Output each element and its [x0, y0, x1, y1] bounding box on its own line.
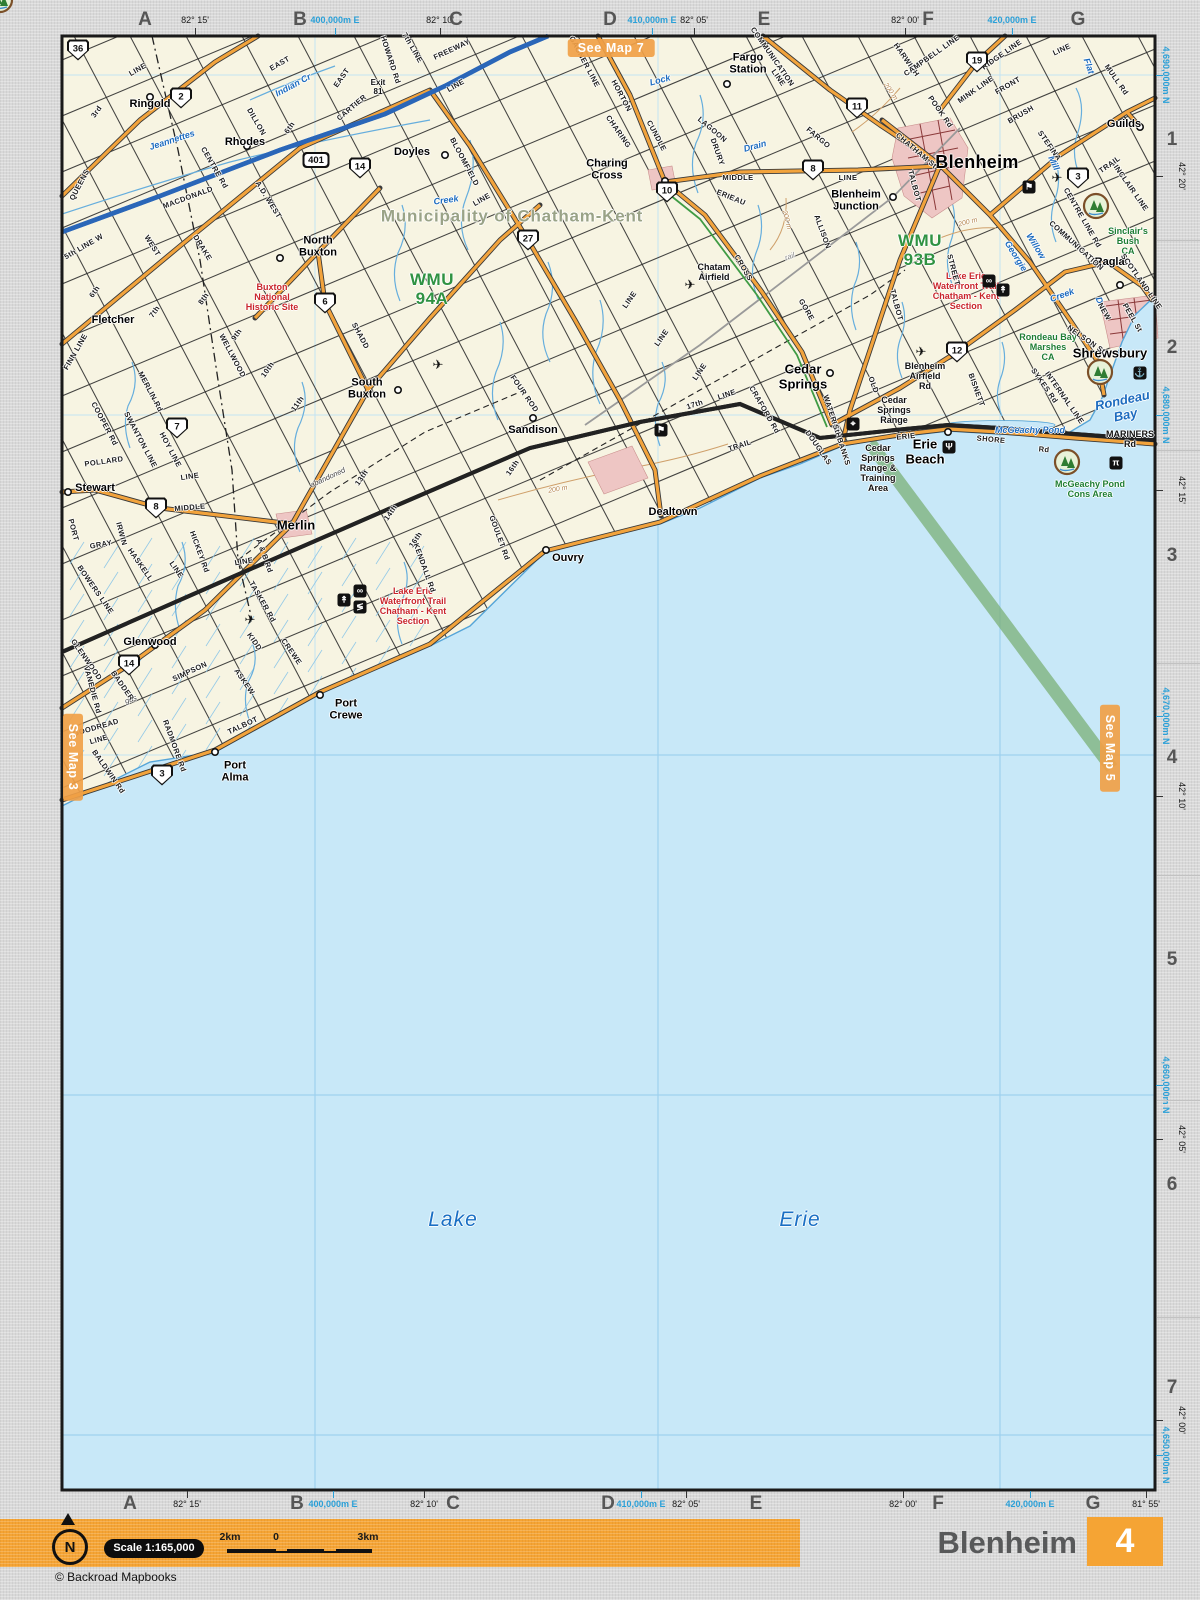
road-label: ALLISON [812, 214, 832, 250]
grid-column-letter: G [1086, 1493, 1101, 1515]
utm-coordinate: 400,000m E [308, 1499, 357, 1509]
shield-number: 12 [952, 345, 963, 356]
road-label: 16th [505, 459, 522, 478]
road-label: NEW [1096, 302, 1113, 322]
road-label: CARTIER [335, 93, 368, 123]
graticule-coordinate: 42° 15' [1177, 476, 1187, 504]
road-label: ASKEW [232, 667, 256, 696]
poi-label-green: McGeachy Pond Cons Area [1055, 479, 1125, 499]
page-title-text: Blenheim [937, 1525, 1077, 1560]
airfield-icon: ✈ [433, 357, 444, 373]
shield-number: 8 [153, 501, 158, 512]
road-label: Rd [1038, 445, 1050, 454]
road-label: ERIE [896, 432, 916, 442]
highway-shield: 401 [303, 152, 330, 168]
road-label: 7th LINE [400, 31, 424, 64]
water-label: Erie [779, 1208, 820, 1232]
see-map-tab[interactable]: See Map 5 [1100, 705, 1120, 792]
road-label: 5th LINE W [63, 232, 105, 261]
road-label: FOUR ROD [508, 374, 540, 414]
row-divider [1157, 1100, 1200, 1101]
road-label: 7th [148, 304, 162, 319]
water-label: Drain [743, 138, 768, 154]
road-label: DRURY [708, 137, 726, 167]
road-label: TALBOT [888, 288, 904, 321]
margin-tick [1156, 716, 1163, 717]
poi-label: Chatam Airfield [697, 262, 730, 282]
road-label: LINE [653, 328, 671, 348]
road-label: CUNDLE [644, 119, 667, 153]
scale-bar-segment [227, 1549, 276, 1553]
road-label: 3rd [90, 104, 104, 119]
water-label: Rondeau Bay [1094, 388, 1154, 428]
road-label: rail [784, 251, 796, 262]
highway-shield: 8 [145, 498, 167, 519]
shield-number: 27 [523, 233, 534, 244]
road-label: ERIEAU [715, 188, 747, 207]
poi-label: Cedar Springs Range & Training Area [860, 443, 897, 493]
road-label: 6th [88, 284, 102, 299]
road-label: WELLWOOD [217, 333, 247, 380]
contour-label: 200 m [958, 217, 979, 230]
highway-shield: 36 [67, 40, 89, 61]
hiking-icon: ↟ [338, 594, 351, 607]
road-label: LINE [180, 472, 200, 483]
water-label: Georgie [1003, 239, 1030, 273]
road-label: EAST [332, 67, 351, 90]
road-label: IRWIN [114, 521, 128, 546]
margin-tick [1156, 1139, 1163, 1140]
scale-zero-label: 0 [273, 1531, 279, 1543]
road-label: BISNETT [966, 372, 986, 408]
shield-number: 2 [178, 91, 183, 102]
road-label: 8th [197, 291, 211, 306]
grid-column-letter: G [1071, 9, 1086, 31]
golf-icon: ⚑ [655, 424, 668, 437]
road-label: 16th [408, 531, 425, 550]
road-label: TRAIL [1098, 155, 1123, 176]
highway-shield: 11 [846, 98, 868, 119]
road-label: POLLARD [84, 455, 124, 469]
road-label: FRONT [994, 75, 1022, 96]
margin-tick [440, 28, 441, 35]
copyright-text: © Backroad Mapbooks [55, 1570, 177, 1584]
road-label: A & B Rd [254, 538, 274, 574]
row-divider [1157, 663, 1200, 664]
highway-shield: 14 [118, 655, 140, 676]
grid-row-number: 1 [1167, 129, 1178, 151]
shield-number: 8 [810, 163, 815, 174]
road-label: GOULET Rd [487, 515, 511, 562]
road-label: INTERNAL LINE [1043, 370, 1086, 426]
town-label: Fargo Station [729, 52, 766, 77]
road-label: LINE [167, 560, 185, 580]
road-label: gas [124, 694, 138, 706]
highway-shield: 6 [314, 293, 336, 314]
town-label: Ringold [130, 98, 171, 110]
municipality-label: Municipality of Chatham-Kent [381, 206, 643, 225]
grid-row-number: 2 [1167, 337, 1178, 359]
graticule-coordinate: 42° 10' [1177, 782, 1187, 810]
road-label: MACDONALD [162, 185, 214, 211]
town-label: Fletcher [92, 314, 135, 326]
road-label: STEFINA [1036, 129, 1063, 162]
graticule-coordinate: 82° 05' [680, 15, 708, 25]
town-label: Port Alma [222, 760, 249, 785]
margin-tick [1030, 1491, 1031, 1498]
road-label: WATER St [821, 394, 841, 434]
highway-shield: 27 [517, 230, 539, 251]
grid-column-letter: B [293, 9, 307, 31]
grid-column-letter: D [603, 9, 617, 31]
road-label: 14th [383, 504, 400, 523]
wmu-label: WMU 94A [410, 270, 454, 308]
grid-row-number: 5 [1167, 949, 1178, 971]
highway-shield: 2 [170, 88, 192, 109]
grid-row-number: 6 [1167, 1174, 1178, 1196]
scale-left-label: 2km [219, 1531, 240, 1543]
water-label: Dr [1094, 296, 1107, 309]
road-label: LINE [89, 733, 109, 746]
airfield-icon: ✈ [685, 277, 696, 293]
road-label: MINK LINE [956, 75, 995, 106]
road-label: CENTRE LINE Rd [1061, 187, 1102, 250]
road-label: BOWERS LINE [75, 564, 115, 616]
town-label: Erie Beach [905, 437, 944, 466]
road-label: SHORE [976, 435, 1005, 446]
highway-shield: 14 [349, 158, 371, 179]
water-label: Lake [428, 1208, 478, 1232]
shield-number: 36 [73, 43, 84, 54]
road-label: TALBOT [906, 169, 922, 202]
road-label: LAGOON [696, 115, 728, 144]
exit-label: Exit 81 [371, 79, 386, 97]
restaurant-icon: Ψ [943, 441, 956, 454]
ski-icon: ≶ [354, 601, 367, 614]
road-label: LINE [691, 362, 709, 382]
grid-column-letter: F [922, 9, 934, 31]
row-divider [1157, 875, 1200, 876]
road-label: EAST [269, 55, 292, 73]
road-label: POOK Rd [926, 94, 954, 129]
margin-tick [1146, 1491, 1147, 1498]
utm-coordinate: 400,000m E [310, 15, 359, 25]
airfield-icon: ✈ [1052, 170, 1063, 186]
highway-shield: 7 [166, 418, 188, 439]
road-label: CENTRE Rd [199, 146, 230, 190]
road-label: NELSON St [1065, 324, 1106, 356]
shield-number: 19 [972, 55, 983, 66]
town-label: South Buxton [348, 377, 386, 402]
airfield-icon: ✈ [245, 612, 256, 628]
margin-tick [641, 1491, 642, 1498]
road-label: FARGO [804, 126, 831, 151]
margin-tick [1156, 415, 1163, 416]
road-label: TALBOT [227, 715, 260, 736]
grid-column-letter: B [290, 1493, 304, 1515]
graticule-coordinate: 42° 05' [1177, 1125, 1187, 1153]
contour-label: 200 m [881, 82, 899, 102]
grid-row-number: 7 [1167, 1377, 1178, 1399]
margin-tick [694, 28, 695, 35]
grid-column-letter: A [138, 9, 152, 31]
graticule-coordinate: 42° 20' [1177, 162, 1187, 190]
margin-tick [333, 1491, 334, 1498]
utm-coordinate: 410,000m E [616, 1499, 665, 1509]
page-number-box: 4 [1087, 1517, 1163, 1566]
road-label: PORT [66, 518, 80, 542]
margin-tick [1156, 490, 1163, 491]
highway-shield: 8 [802, 160, 824, 181]
wmu-label: WMU 93B [898, 231, 942, 269]
road-label: KIDD [245, 631, 263, 652]
water-label: Creek [433, 193, 459, 206]
water-label: Willow [1024, 231, 1048, 260]
road-label: CHATHAM St [894, 131, 938, 170]
shield-number: 7 [174, 421, 179, 432]
town-label: Port Crewe [329, 698, 362, 723]
poi-label-green: Sinclair's Bush CA [1108, 226, 1148, 256]
graticule-coordinate: 82° 00' [889, 1499, 917, 1509]
road-label: LINE [717, 388, 737, 402]
contour-label: 200 m [780, 210, 793, 231]
road-label: CAMPBELL LINE [903, 34, 962, 79]
road-label: LINE [1052, 42, 1072, 58]
town-label: Ouvry [552, 552, 584, 564]
road-label: GORE [796, 298, 815, 323]
row-divider [1157, 1317, 1200, 1318]
poi-label-green: Rondeau Bay Marshes CA [1019, 332, 1077, 362]
road-label: SYKES Rd [1029, 367, 1059, 405]
town-label: Stewart [75, 482, 115, 494]
highway-shield: 10 [656, 182, 678, 203]
town-label: Sandison [508, 424, 558, 436]
map-page: RingoldRhodesDoylesCharing CrossFargo St… [0, 0, 1200, 1600]
graticule-coordinate: 82° 00' [891, 15, 919, 25]
north-arrow-icon [61, 1513, 75, 1525]
picnic-icon: π [1110, 457, 1123, 470]
road-label: BLOOMFIELD [448, 136, 481, 187]
road-label: SINCLAIR LINE [1108, 159, 1149, 213]
utm-coordinate: 420,000m E [1005, 1499, 1054, 1509]
road-label: OLD [866, 376, 880, 395]
margin-tick [1156, 1085, 1163, 1086]
town-label: Glenwood [123, 636, 176, 648]
town-label: Merlin [277, 519, 315, 534]
road-label: FINN LINE [62, 332, 89, 371]
road-label: SCOTLAND LINE [1119, 253, 1164, 312]
town-label: Charing Cross [586, 158, 628, 183]
road-label: VANEDIE Rd [82, 665, 103, 714]
road-label: MULL Rd [1102, 63, 1129, 97]
road-label: COOPER Rd [89, 401, 119, 447]
graticule-coordinate: 82° 10' [410, 1499, 438, 1509]
margin-tick [903, 1491, 904, 1498]
see-map-tab[interactable]: See Map 7 [568, 39, 655, 57]
road-label: LINE [769, 68, 787, 88]
road-label: LINE [472, 192, 492, 209]
shield-number: 14 [124, 658, 135, 669]
graticule-coordinate: 42° 00' [1177, 1406, 1187, 1434]
town-label: Dealtown [649, 506, 698, 518]
water-label: Lock [649, 72, 672, 87]
highway-shield: 3 [1067, 168, 1089, 189]
poi-label: Blenheim Airfield Rd [905, 361, 946, 391]
road-label: LINE [621, 290, 639, 310]
road-label: BALDWIN Rd [90, 749, 126, 796]
grid-column-letter: E [750, 1493, 763, 1515]
road-label: HOWARD Rd [378, 35, 401, 85]
copyright: © Backroad Mapbooks [55, 1570, 177, 1584]
town-label: Rhodes [225, 136, 265, 148]
grid-column-letter: C [446, 1493, 460, 1515]
contour-label: 200 m [548, 484, 569, 495]
grid-column-letter: E [758, 9, 771, 31]
scale-text: Scale 1:165,000 [113, 1542, 194, 1554]
see-map-tab[interactable]: See Map 3 [63, 714, 83, 801]
town-label: Blenheim Junction [831, 189, 881, 214]
road-label: 9th [230, 327, 244, 342]
grid-column-letter: F [932, 1493, 944, 1515]
scale-bar-segment [336, 1549, 372, 1553]
grid-row-number: 3 [1167, 545, 1178, 567]
road-label: MIDDLE [722, 174, 753, 182]
page-number: 4 [1116, 1522, 1135, 1561]
road-label: BADDER [109, 669, 136, 702]
road-label: WEST [142, 234, 161, 258]
north-letter: N [65, 1539, 76, 1556]
margin-tick [686, 1491, 687, 1498]
boat-launch-icon: ⚓ [1134, 367, 1147, 380]
road-label: SIMPSON [171, 660, 208, 683]
road-label: CHARING [604, 114, 633, 150]
road-label: TRAIL [727, 438, 753, 453]
margin-tick [1156, 75, 1163, 76]
grid-column-letter: A [123, 1493, 137, 1515]
grid-row-number: 4 [1167, 747, 1178, 769]
scale-right-label: 3km [357, 1531, 378, 1543]
road-label: LINE [446, 78, 466, 95]
margin-tick [1156, 796, 1163, 797]
shield-number: 6 [322, 296, 327, 307]
road-label: MERLIN Rd [136, 370, 164, 413]
road-label: LINE [234, 556, 254, 568]
road-label: CREWE [279, 637, 303, 666]
poi-label-red: Lake Erie Waterfront Trail Chatham - Ken… [380, 586, 447, 626]
road-label: STREET [945, 253, 961, 286]
utm-coordinate: 410,000m E [627, 15, 676, 25]
road-label: BRUSH [1006, 104, 1035, 126]
road-label: COMMUNICATION [1047, 219, 1105, 272]
shield-number: 401 [308, 155, 324, 166]
graticule-coordinate: 82° 05' [672, 1499, 700, 1509]
highway-shield: 12 [946, 342, 968, 363]
water-label: Jeannettes [148, 128, 196, 152]
road-label: SHADD [350, 321, 371, 350]
grid-column-letter: D [601, 1493, 615, 1515]
highway-shield: 3 [151, 765, 173, 786]
margin-tick [187, 1491, 188, 1498]
margin-tick [335, 28, 336, 35]
road-label: 6th [283, 120, 297, 135]
road-label: HARWICH [891, 42, 920, 79]
water-label: Creek [1049, 286, 1076, 304]
airfield-icon: ✈ [916, 344, 927, 360]
road-label: HICKEY Rd [188, 530, 211, 574]
road-label: GRAY [89, 539, 113, 551]
graticule-coordinate: 81° 55' [1132, 1499, 1160, 1509]
road-label: A.D. WEST [253, 180, 283, 220]
poi-label: MARINERS Rd [1106, 429, 1154, 449]
margin-tick [424, 1491, 425, 1498]
margin-tick [1156, 176, 1163, 177]
grid-column-letter: C [449, 9, 463, 31]
cycling-icon: ∞ [983, 275, 996, 288]
poi-label-red: Buxton National Historic Site [246, 282, 299, 312]
shield-number: 14 [355, 161, 366, 172]
road-label: DILLON [245, 107, 267, 137]
shield-number: 10 [662, 185, 673, 196]
north-indicator: N [52, 1529, 88, 1565]
attraction-icon: ⚑ [1023, 181, 1036, 194]
town-label: Cedar Springs [779, 362, 827, 391]
road-label: QUEENS [68, 168, 91, 202]
margin-tick [1012, 28, 1013, 35]
road-label: KENDALL Rd [411, 542, 437, 594]
road-label: CROSS [732, 253, 754, 282]
page-title: Blenheim [860, 1521, 1077, 1565]
row-divider [1157, 240, 1200, 241]
road-label: MIDDLE [174, 502, 206, 513]
town-label: North Buxton [299, 235, 337, 260]
shield-number: 11 [852, 101, 862, 112]
town-label: Shrewsbury [1073, 347, 1147, 362]
water-label: McGeachy Pond [995, 425, 1065, 435]
water-label: Indian Cr [273, 71, 312, 98]
scale-bar-segment [287, 1549, 324, 1553]
row-divider [1157, 450, 1200, 451]
town-label: Raglan [1095, 256, 1132, 268]
road-label: 13th [354, 469, 371, 488]
highway-shield: 19 [966, 52, 988, 73]
town-label: Blenheim [935, 152, 1018, 172]
road-label: 10th [260, 361, 277, 380]
town-label: Doyles [394, 146, 430, 158]
poi-label: Cedar Springs Range [877, 395, 911, 425]
road-label: DOUGLAS [803, 429, 833, 467]
road-label: 11th [290, 395, 306, 413]
margin-tick [652, 28, 653, 35]
scale-label: Scale 1:165,000 [104, 1539, 204, 1558]
road-label: SWANTON LINE [122, 411, 159, 470]
road-label: DRAKE [191, 234, 213, 263]
graticule-coordinate: 82° 15' [173, 1499, 201, 1509]
shield-number: 3 [159, 768, 164, 779]
margin-tick [195, 28, 196, 35]
road-label: 17th [686, 398, 705, 411]
margin-tick [1156, 1420, 1163, 1421]
road-label: PEEL St [1120, 302, 1143, 334]
hiking-icon: ↟ [997, 284, 1010, 297]
water-label: Flat [1082, 57, 1097, 75]
town-label: Guilds [1107, 118, 1141, 130]
shooting-range-icon: ⌖ [847, 418, 860, 431]
road-label: LINE [839, 174, 858, 182]
road-label: FREEWAY [432, 38, 471, 62]
utm-coordinate: 420,000m E [987, 15, 1036, 25]
cycling-icon: ∞ [354, 585, 367, 598]
road-label: abandoned [309, 466, 347, 489]
